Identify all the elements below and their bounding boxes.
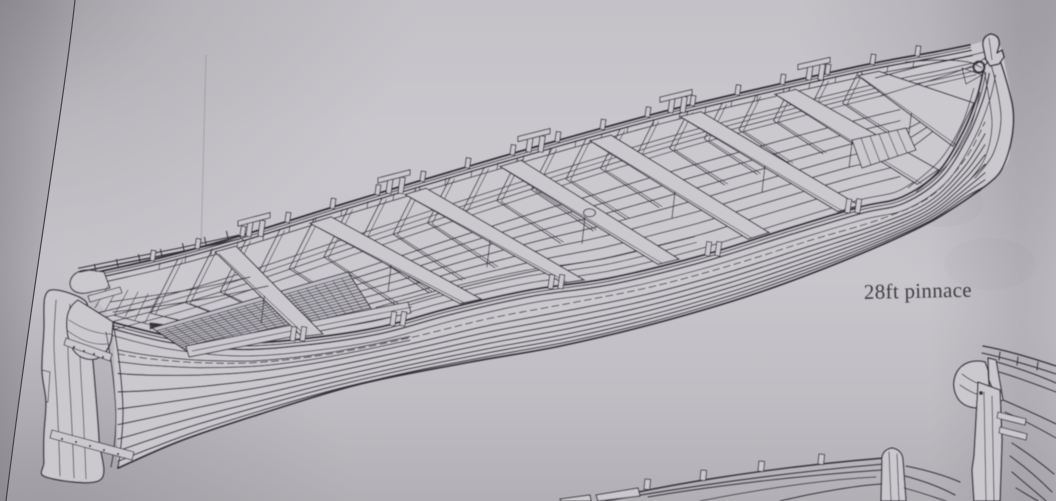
- svg-text:28ft pinnace: 28ft pinnace: [864, 278, 972, 304]
